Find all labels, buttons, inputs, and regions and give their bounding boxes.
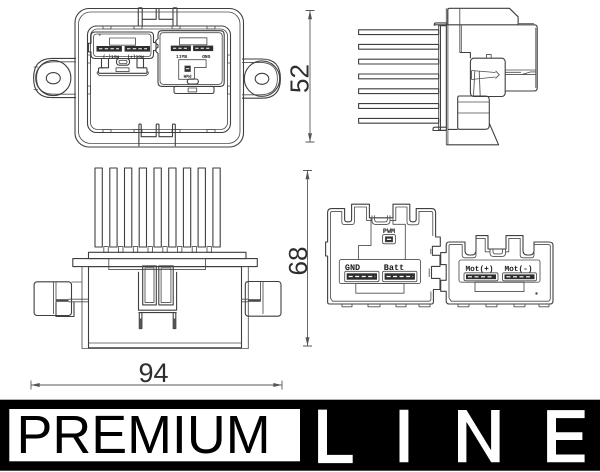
svg-text:PWM: PWM [183,73,191,78]
svg-text:Mot(-): Mot(-) [103,53,120,59]
svg-text:PWM: PWM [383,228,395,236]
svg-text:PREMIUM: PREMIUM [17,406,271,465]
svg-text:Mot(+): Mot(+) [127,53,144,59]
svg-text:52: 52 [285,64,315,93]
svg-text:68: 68 [283,247,313,276]
svg-text:Batt: Batt [176,53,187,59]
svg-text:GND: GND [202,53,211,59]
svg-text:94: 94 [138,358,168,388]
